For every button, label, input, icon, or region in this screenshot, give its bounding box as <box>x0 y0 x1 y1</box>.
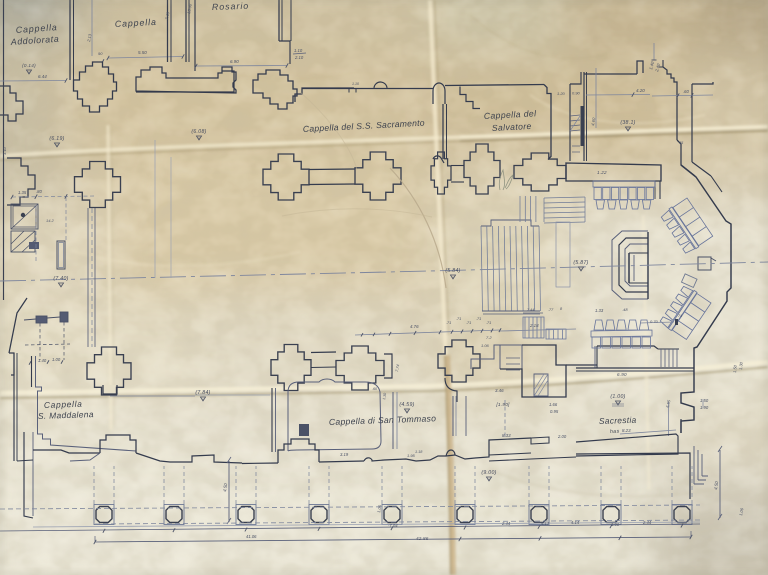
svg-text:1.90: 1.90 <box>700 405 709 410</box>
svg-text:14.2: 14.2 <box>46 218 55 223</box>
svg-text:1.00: 1.00 <box>52 357 61 362</box>
svg-text:1.66: 1.66 <box>549 402 558 407</box>
svg-text:.71: .71 <box>446 321 451 325</box>
svg-text:6.90: 6.90 <box>230 59 239 64</box>
svg-text:(6.19): (6.19) <box>49 136 64 142</box>
svg-text:90: 90 <box>98 51 103 56</box>
svg-text:4.17: 4.17 <box>541 521 550 526</box>
svg-text:(0.14): (0.14) <box>22 63 36 68</box>
svg-text:4.76: 4.76 <box>410 324 419 329</box>
svg-text:8.33: 8.33 <box>502 433 511 438</box>
svg-text:2.18: 2.18 <box>529 323 539 328</box>
svg-text:1.95: 1.95 <box>407 453 416 458</box>
svg-text:(1.00): (1.00) <box>610 394 625 400</box>
svg-text:1.10: 1.10 <box>294 48 303 53</box>
svg-text:[1.90]: [1.90] <box>495 402 510 408</box>
svg-text:.71: .71 <box>476 317 481 321</box>
svg-text:(9.00): (9.00) <box>481 470 496 476</box>
svg-text:3.19: 3.19 <box>340 452 349 457</box>
svg-text:(5.84): (5.84) <box>445 268 460 274</box>
svg-text:.77: .77 <box>548 308 554 312</box>
svg-text:0.70: 0.70 <box>650 319 659 324</box>
svg-text:Sacrestia: Sacrestia <box>599 415 637 426</box>
svg-text:has: has <box>610 429 620 435</box>
svg-text:(7.40): (7.40) <box>53 276 68 282</box>
svg-text:2.44: 2.44 <box>642 520 652 525</box>
svg-text:.71: .71 <box>456 317 461 321</box>
svg-text:4.14: 4.14 <box>571 520 580 525</box>
svg-text:.60: .60 <box>372 387 377 391</box>
svg-text:2.00: 2.00 <box>557 434 567 439</box>
svg-text:1.40: 1.40 <box>38 358 47 363</box>
svg-text:1.06: 1.06 <box>481 343 490 348</box>
svg-text:1.20: 1.20 <box>557 91 566 96</box>
svg-text:1.33: 1.33 <box>595 308 604 313</box>
svg-text:Cappella: Cappella <box>44 399 83 410</box>
svg-text:1.18: 1.18 <box>415 450 423 454</box>
svg-text:.48: .48 <box>622 307 628 312</box>
svg-text:(6.08): (6.08) <box>191 129 206 135</box>
svg-text:1.10: 1.10 <box>352 82 359 86</box>
svg-text:0.95: 0.95 <box>550 409 559 414</box>
svg-text:6.90: 6.90 <box>617 372 627 377</box>
svg-text:2.44: 2.44 <box>501 521 511 526</box>
svg-text:(38.1): (38.1) <box>620 120 635 126</box>
svg-text:1.50: 1.50 <box>732 364 738 373</box>
svg-text:(7.84): (7.84) <box>195 390 210 396</box>
svg-text:1.00: 1.00 <box>611 522 620 527</box>
svg-text:Salvatore: Salvatore <box>492 121 532 133</box>
svg-text:7.2: 7.2 <box>486 335 492 340</box>
svg-text:.71: .71 <box>486 321 491 325</box>
svg-text:(5.87): (5.87) <box>573 260 588 266</box>
svg-text:6.44: 6.44 <box>38 74 47 79</box>
svg-text:7.44: 7.44 <box>527 308 534 312</box>
svg-text:-7.04: -7.04 <box>388 523 398 528</box>
svg-text:1.30: 1.30 <box>738 361 744 370</box>
svg-text:1.50: 1.50 <box>700 398 709 403</box>
svg-text:4.20: 4.20 <box>636 88 645 93</box>
svg-text:42.86: 42.86 <box>416 536 429 541</box>
svg-text:(4.59): (4.59) <box>399 402 414 408</box>
svg-text:1.35: 1.35 <box>18 190 27 195</box>
svg-text:41.06: 41.06 <box>246 534 257 539</box>
svg-text:.80: .80 <box>36 189 42 194</box>
svg-text:0.90: 0.90 <box>572 91 581 96</box>
svg-text:74: 74 <box>678 314 682 318</box>
svg-text:8.23: 8.23 <box>622 428 631 433</box>
svg-text:3.46: 3.46 <box>495 388 504 393</box>
svg-text:.71: .71 <box>466 321 471 325</box>
svg-text:5.50: 5.50 <box>138 50 147 55</box>
svg-text:2.10: 2.10 <box>294 55 304 60</box>
svg-text:1.22: 1.22 <box>597 170 607 175</box>
svg-text:.60: .60 <box>683 89 689 94</box>
svg-text:S. Maddalena: S. Maddalena <box>38 409 94 421</box>
